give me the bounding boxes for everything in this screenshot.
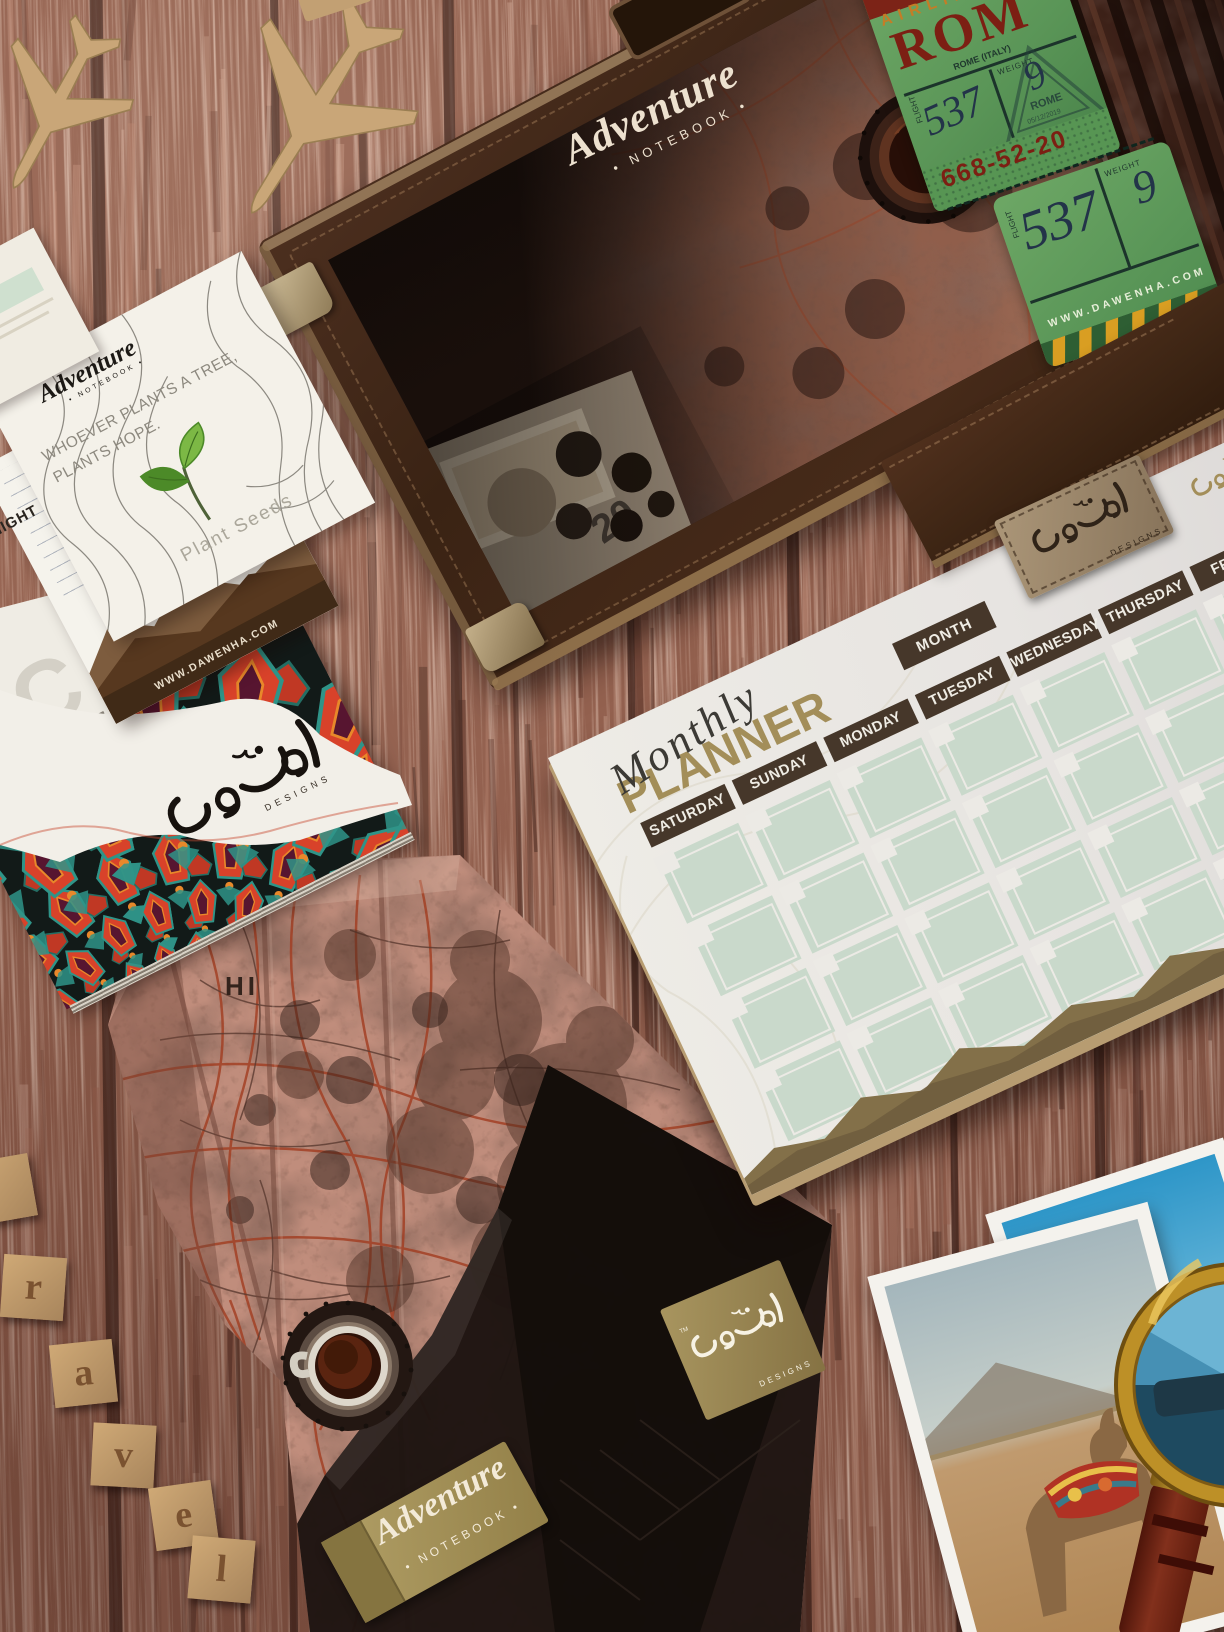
svg-text:TM: TM	[679, 1326, 689, 1335]
svg-text:HI: HI	[225, 971, 259, 1001]
